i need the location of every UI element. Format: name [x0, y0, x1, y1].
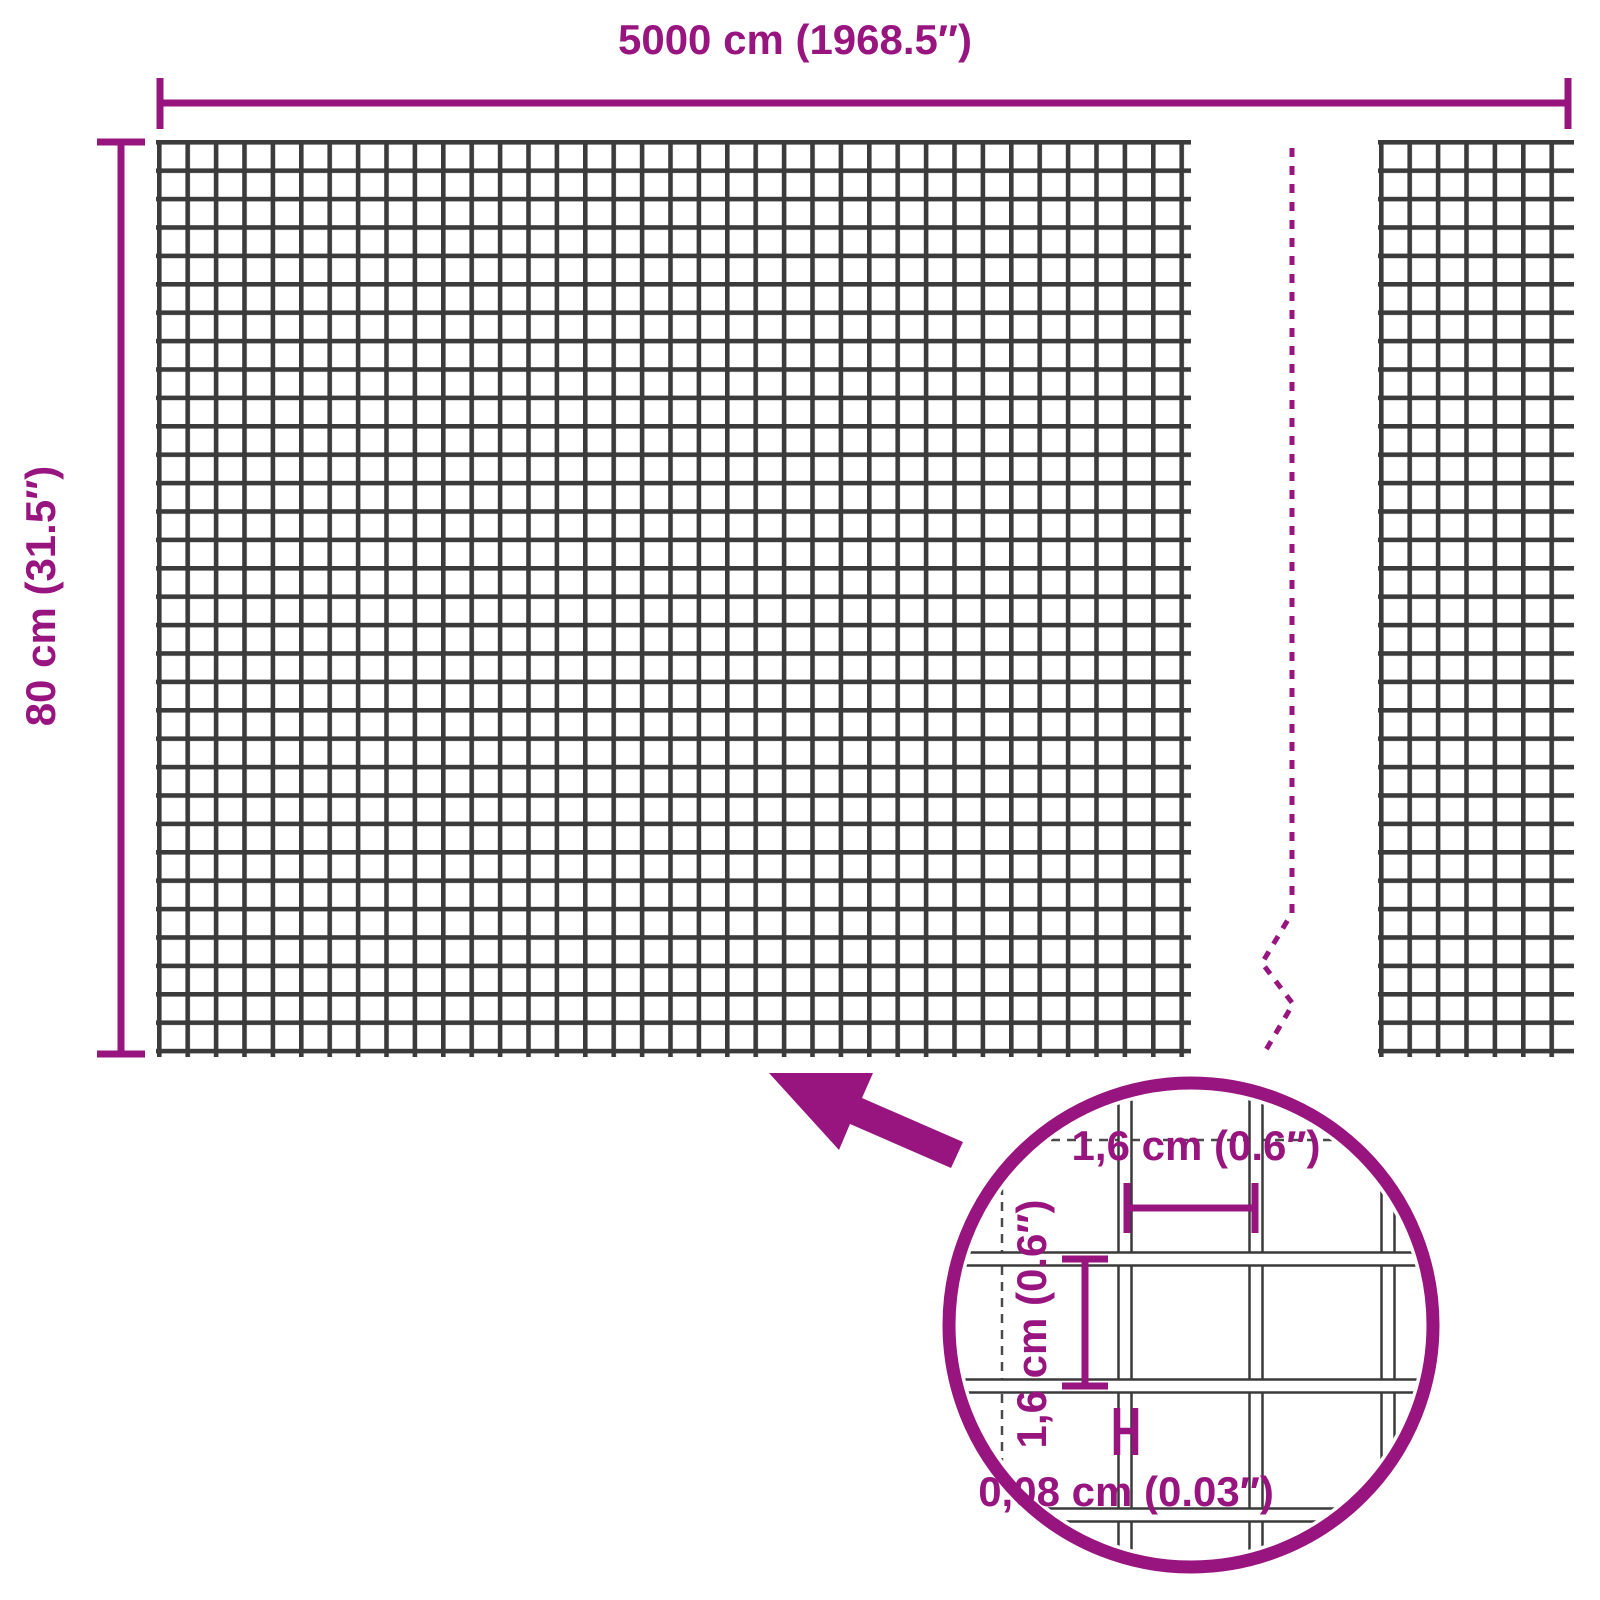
detail-pitch-vertical-label: 1,6 cm (0.6″): [1008, 1200, 1055, 1449]
detail-magnifier: 1,6 cm (0.6″) 1,6 cm (0.6″) 0,08 cm (0.0…: [949, 1083, 1440, 1567]
detail-pitch-horizontal-label: 1,6 cm (0.6″): [1072, 1122, 1321, 1169]
break-line: [1262, 148, 1293, 1055]
magnifier-arrow-icon: [769, 1073, 963, 1168]
detail-wire-vertical: [1382, 1085, 1395, 1563]
product-dimension-diagram: 5000 cm (1968.5″) 80 cm (31.5″): [0, 0, 1600, 1600]
wire-thickness-label: 0,08 cm (0.03″): [978, 1468, 1274, 1515]
height-dimension: 80 cm (31.5″): [17, 139, 145, 1057]
width-dimension-label: 5000 cm (1968.5″): [618, 16, 972, 63]
mesh-panel-right: [1378, 140, 1574, 1057]
mesh-panel-left: [156, 140, 1191, 1057]
height-dimension-label: 80 cm (31.5″): [17, 466, 64, 727]
width-dimension: 5000 cm (1968.5″): [160, 16, 1568, 129]
diagram-svg: 5000 cm (1968.5″) 80 cm (31.5″): [0, 0, 1600, 1600]
